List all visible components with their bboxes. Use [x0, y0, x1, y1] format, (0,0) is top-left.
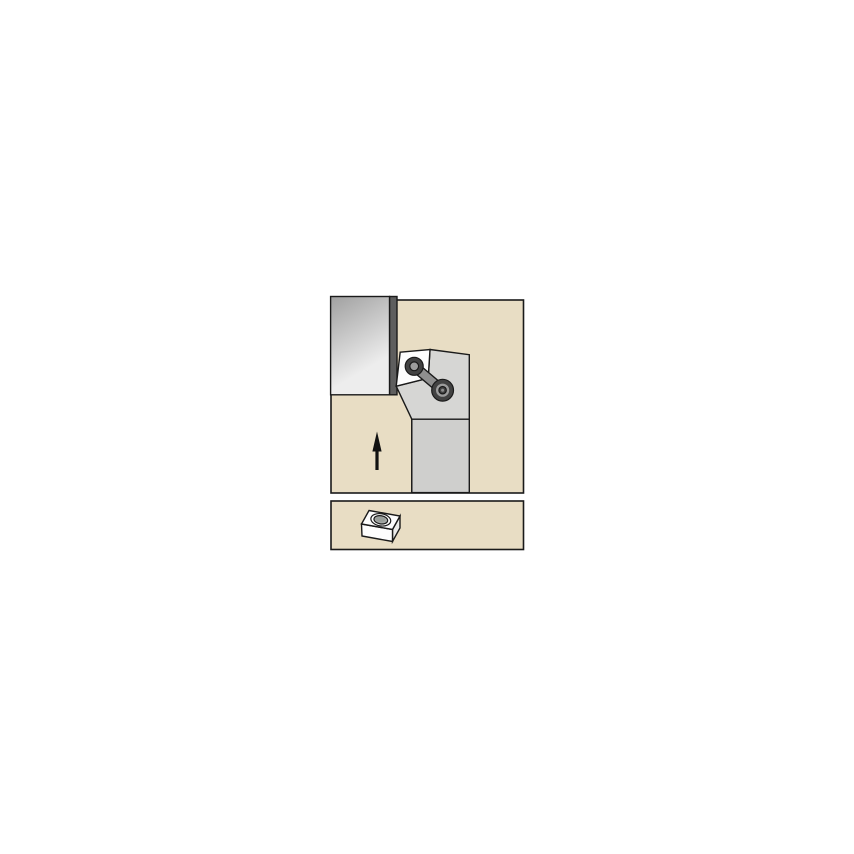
figure-canvas [0, 0, 854, 854]
pivot-screw-center [441, 389, 444, 392]
workpiece-face [331, 297, 390, 395]
workpiece-machined-band [390, 297, 397, 395]
insert-screw-socket [410, 362, 419, 371]
page [0, 0, 854, 854]
insert-detail-panel [331, 501, 524, 550]
toolholder-shank [412, 419, 470, 492]
